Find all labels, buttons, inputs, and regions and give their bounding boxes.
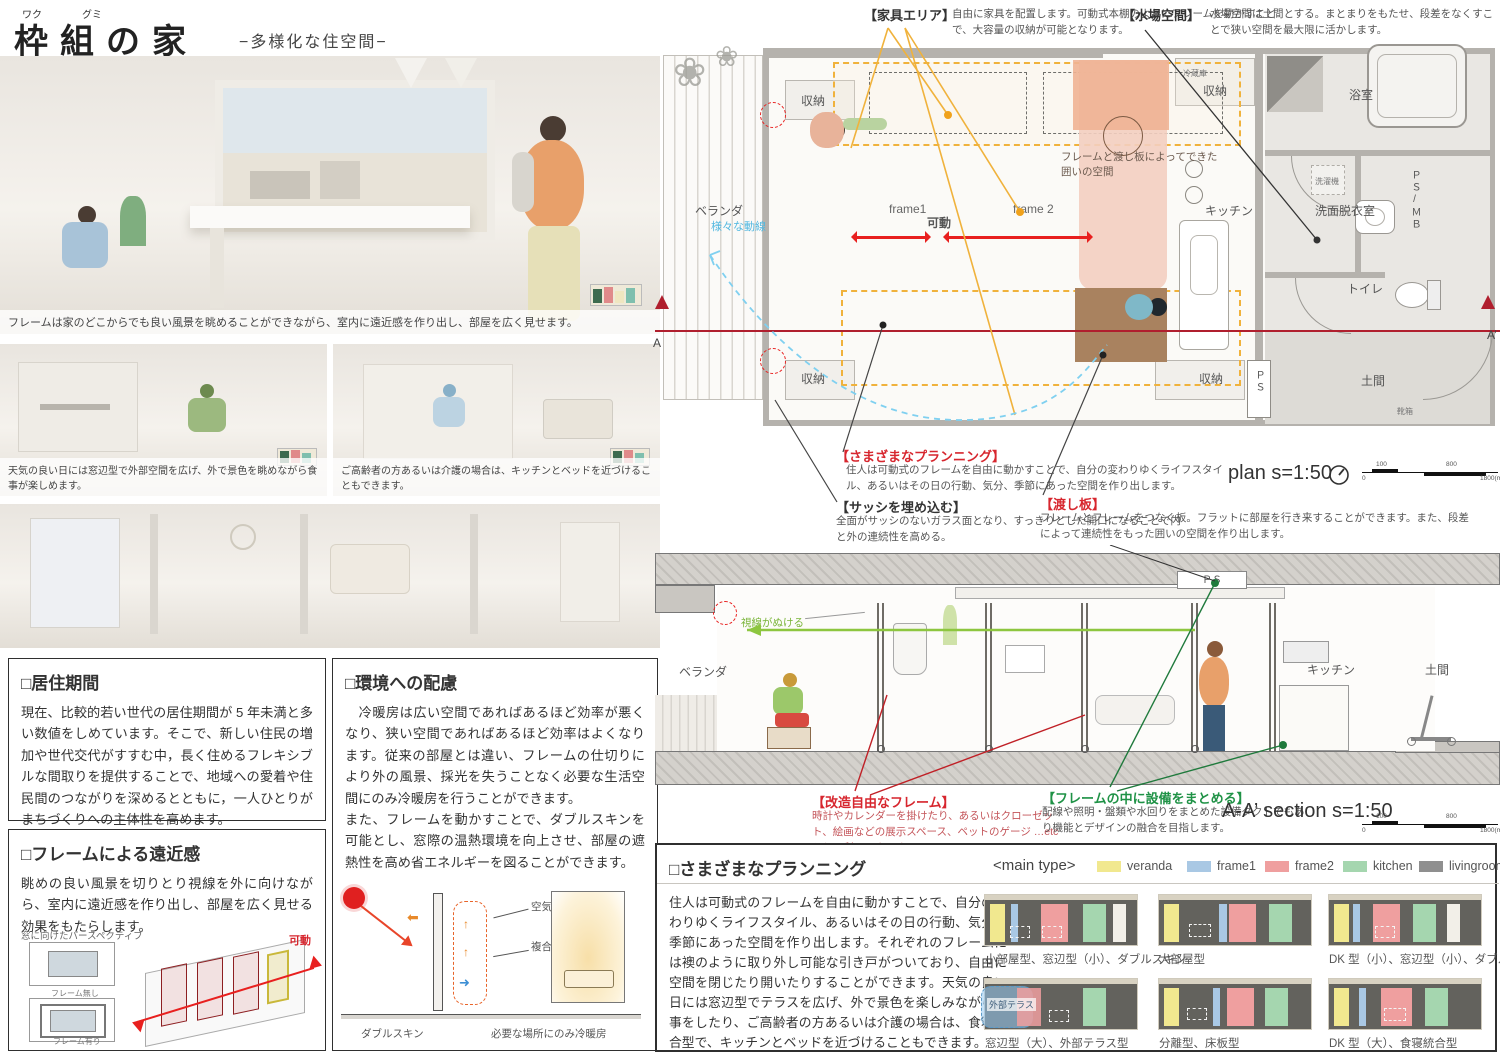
toilet-bowl <box>1395 282 1429 308</box>
window-shape <box>30 518 120 628</box>
storage-br-label: 収納 <box>1199 370 1223 387</box>
airflow-up-arrow: ↑ <box>463 917 469 931</box>
window-picture <box>50 1010 96 1032</box>
legend-label: frame1 <box>1217 859 1256 873</box>
movable-label: 可動 <box>927 214 951 231</box>
frame-wheel <box>1191 745 1199 753</box>
seated-person-body <box>62 222 108 268</box>
section-person-head <box>1207 641 1223 657</box>
person-head <box>443 384 456 397</box>
window-picture <box>48 951 98 977</box>
local-hvac-label: 必要な場所にのみ冷暖房 <box>491 1026 607 1041</box>
person-bag <box>512 152 534 212</box>
section-cut-arrow <box>1481 288 1495 309</box>
section-drawing: ＰＳ ベランダ <box>655 545 1500 800</box>
north-arrow-icon <box>1328 464 1350 486</box>
plant-icon: ❀ <box>673 50 707 96</box>
floor-slab <box>655 751 1500 785</box>
water-note-title: 【水場空間】 <box>1122 5 1200 24</box>
type-label-1: 小部屋型、窓辺型（小）、ダブルスキン <box>985 951 1186 967</box>
tick-0: 0 <box>1362 475 1366 482</box>
section-cut-arrow <box>655 288 669 309</box>
page-subtitle: −多様化な住空間− <box>239 28 388 52</box>
scalebar-segment <box>1372 821 1398 825</box>
kitchen-swatch <box>1343 861 1367 872</box>
arrowhead <box>309 956 330 975</box>
type-label-2: 大部屋型 <box>1159 951 1205 967</box>
person-head <box>200 384 214 398</box>
legend-label: frame2 <box>1295 859 1334 873</box>
enclosure-label: フレームと渡し板によってできた囲いの空間 <box>1061 150 1221 179</box>
furniture-shelf-outline <box>869 72 1027 134</box>
plant-shape <box>120 196 146 246</box>
sofa-shape <box>1095 695 1175 725</box>
render-main-caption: フレームは家のどこからでも良い風景を眺めることができながら、室内に遠近感を作り出… <box>0 310 660 334</box>
washroom-label: 洗面脱衣室 <box>1315 202 1375 219</box>
frame1-swatch <box>1187 861 1211 872</box>
ps-label: ＰＳ <box>1251 370 1266 394</box>
legend-label: veranda <box>1127 859 1172 873</box>
presentation-board: ワク グミ 枠組の家 −多様化な住空間− フレームは家のどこからでも良い風景を眺… <box>0 0 1500 1054</box>
legend-label: livingroom <box>1449 859 1500 873</box>
shoes-label: 靴箱 <box>1397 406 1413 417</box>
type-thumb-1 <box>985 895 1137 945</box>
detail-circle <box>713 601 737 625</box>
shelf-shape <box>560 522 620 622</box>
section-doma-label: 土間 <box>1425 661 1449 678</box>
scalebar-segment <box>1424 824 1486 828</box>
title-block: ワク グミ 枠組の家 −多様化な住空間− <box>14 6 654 54</box>
section-person-legs <box>1203 705 1225 751</box>
frame-post <box>985 603 992 751</box>
wall-art <box>1005 645 1045 673</box>
render-frames <box>0 504 660 648</box>
tick-1800: 1800(mm) <box>1480 475 1500 482</box>
section-veranda-label: ベランダ <box>679 663 727 680</box>
person-head <box>540 116 566 142</box>
colored-bookshelf <box>590 284 642 306</box>
no-frame-diagram <box>29 942 115 986</box>
kitchen-counter <box>1279 685 1349 751</box>
veranda-swatch <box>1097 861 1121 872</box>
person-body <box>188 398 226 432</box>
toilet-label: トイレ <box>1347 280 1383 297</box>
stool-shape <box>767 727 811 749</box>
planning-panel-body: 住人は可動式のフレームを自由に動かすことで、自分の変わりゆくライフスタイル、ある… <box>669 893 1007 1053</box>
city-block-shape <box>250 171 310 199</box>
fridge-label: 冷蔵庫 <box>1183 68 1207 79</box>
frame-post <box>877 603 884 751</box>
legend-item-frame1: frame1 <box>1187 859 1256 873</box>
plan-person-body <box>810 112 844 148</box>
person-legs <box>528 226 580 321</box>
flow-label: 様々な動線 <box>711 218 766 234</box>
residence-body: 現在、比較的若い世代の居住期間が 5 年未満と多い数値をしめています。そこで、新… <box>21 702 313 830</box>
plan-scale-label: plan s=1:50 <box>1228 462 1332 485</box>
double-skin-label: ダブルスキン <box>361 1026 424 1041</box>
heated-room <box>551 891 625 1003</box>
sightline-label: 視線がぬける <box>741 615 804 630</box>
scooter-wheel <box>1407 737 1416 746</box>
bathtub <box>1367 44 1467 128</box>
render-main: フレームは家のどこからでも良い風景を眺めることができながら、室内に遠近感を作り出… <box>0 56 660 334</box>
perspective-title: □フレームによる遠近感 <box>21 840 313 865</box>
type-label-3: DK 型（小）、窓辺型（小）、ダブルスキン <box>1329 951 1500 967</box>
environment-body1: 冷暖房は広い空間であればあるほど効率が悪くなり、狭い空間であればあるほど効率はよ… <box>345 702 645 809</box>
tick-800: 800 <box>1446 461 1457 468</box>
doma-label: 土間 <box>1361 372 1385 389</box>
frame-wheel <box>1081 745 1089 753</box>
movable-frame-shape <box>197 957 223 1021</box>
book-shape <box>604 287 613 303</box>
scalebar-segment <box>1372 469 1398 473</box>
bath-door-shape <box>1267 56 1323 112</box>
section-cut-line <box>655 330 1500 332</box>
wall <box>1415 150 1490 156</box>
detail-circle <box>760 348 786 374</box>
frame-post <box>470 514 478 634</box>
counter-shape <box>190 206 470 228</box>
environment-box: □環境への配慮 冷暖房は広い空間であればあるほど効率が悪くなり、狭い空間であれば… <box>332 658 658 1051</box>
sun-ray-arrow <box>360 905 409 944</box>
bed-shape <box>543 399 613 439</box>
frame-post <box>1081 603 1088 751</box>
floor-plan: ❀ ❀ <box>655 30 1500 440</box>
frame-wheel <box>985 745 993 753</box>
with-frame-label: フレーム有り <box>53 1036 101 1047</box>
livingroom-swatch <box>1419 861 1443 872</box>
planning-note-body: 住人は可動式のフレームを自由に動かすことで、自分の変わりゆくライフスタイル、ある… <box>846 463 1236 495</box>
wheelchair-person <box>433 397 465 427</box>
frame-post <box>1191 603 1198 751</box>
plan-scalebar: 0 100 800 1800(mm) <box>1362 466 1500 480</box>
airflow-out-arrow: ⬅ <box>407 909 419 926</box>
legend-item-livingroom: livingroom <box>1419 859 1500 873</box>
kitchen-label: キッチン <box>1205 202 1253 219</box>
section-person-body <box>1199 657 1229 707</box>
leader-line <box>493 950 529 957</box>
type-label-4: 窓辺型（大）、外部テラス型 <box>985 1035 1129 1051</box>
furniture-note-title: 【家具エリア】 <box>864 5 955 24</box>
scooter-wheel <box>1447 737 1456 746</box>
wall-clock <box>230 524 256 550</box>
frame-post <box>1269 603 1276 751</box>
plant-shape <box>943 605 957 645</box>
environment-diagram: ↑ ↑ ➜ ⬅ 空気層 複合ガラス ダブルスキン 必要な場所にのみ冷暖房 <box>341 887 641 1037</box>
airflow-up-arrow: ↑ <box>463 945 469 959</box>
type-thumb-3 <box>1329 895 1481 945</box>
render-terrace: 天気の良い日には窓辺型で外部空間を広げ、外で景色を眺めながら食事が楽しめます。 <box>0 344 327 496</box>
scalebar-segment <box>1424 472 1486 476</box>
book-shape <box>593 289 602 303</box>
ceiling-slab <box>655 553 1500 585</box>
movable-arrow <box>947 236 1089 239</box>
section-kitchen-label: キッチン <box>1307 661 1355 678</box>
toilet-tank <box>1427 280 1441 310</box>
stove-burner <box>1185 186 1203 204</box>
type-thumb-6 <box>1329 979 1481 1029</box>
residence-box: □居住期間 現在、比較的若い世代の居住期間が 5 年未満と多い数値をしめています… <box>8 658 326 821</box>
render-care-caption: ご高齢者の方あるいは介護の場合は、キッチンとベッドを近づけることもできます。 <box>333 458 660 496</box>
storage-bl-label: 収納 <box>801 370 825 387</box>
tick-800: 800 <box>1446 813 1457 820</box>
legend-item-kitchen: kitchen <box>1343 859 1413 873</box>
frame2-label: frame 2 <box>1013 202 1054 216</box>
wall <box>763 48 1103 58</box>
type-thumb-2 <box>1159 895 1311 945</box>
plan-person-legs <box>843 118 887 130</box>
storage-tr-label: 収納 <box>1203 82 1227 99</box>
book-shape <box>626 288 635 303</box>
airflow-in-arrow: ➜ <box>459 975 470 991</box>
environment-title: □環境への配慮 <box>345 669 645 694</box>
legend-item-frame2: frame2 <box>1265 859 1334 873</box>
bed-shape <box>564 970 614 988</box>
ps-box: ＰＳ <box>1177 571 1247 589</box>
hanging-shirt <box>893 623 927 675</box>
movable-frame-shape <box>233 951 259 1015</box>
tick-100: 100 <box>1376 813 1387 820</box>
scooter-deck <box>1411 737 1451 741</box>
type-label-5: 分離型、床板型 <box>1159 1035 1240 1051</box>
frame-wheel <box>877 745 885 753</box>
frame1-label: frame1 <box>889 202 926 216</box>
veranda-label: ベランダ <box>695 202 743 219</box>
washer-label: 洗濯機 <box>1315 176 1339 187</box>
balcony-rail <box>655 695 717 751</box>
counter-leg <box>210 228 224 308</box>
section-mark-a: A <box>653 336 661 350</box>
slab-step <box>655 585 715 613</box>
type-label-6: DK 型（大）、食寝統合型 <box>1329 1035 1457 1051</box>
detail-circle <box>760 102 786 128</box>
perspective-diagram-caption: 窓に向けたパースペクティブ <box>21 928 143 942</box>
frame-isometric-sketch: 可動 <box>139 930 319 1045</box>
sink-basin <box>1190 235 1218 295</box>
bath-label: 浴室 <box>1349 86 1373 103</box>
legend-label: kitchen <box>1373 859 1413 873</box>
type-thumb-4: 外部テラス <box>985 979 1137 1029</box>
book-shape <box>615 291 624 303</box>
perspective-box: □フレームによる遠近感 眺めの良い風景を切りとり視線を外に向けながら、室内に遠近… <box>8 829 326 1051</box>
bathtub-inner <box>1377 54 1457 118</box>
tick-100: 100 <box>1376 461 1387 468</box>
terrace-label: 外部テラス <box>987 998 1036 1011</box>
planning-panel: □さまざまなプランニング 住人は可動式のフレームを自由に動かすことで、自分の変わ… <box>655 843 1497 1052</box>
frame2-swatch <box>1265 861 1289 872</box>
tick-0: 0 <box>1362 827 1366 834</box>
section-mark-a-prime: A’ <box>1487 328 1497 342</box>
plant-icon: ❀ <box>715 40 738 73</box>
storage-tl-label: 収納 <box>801 92 825 109</box>
board-note-body: フレームとフレームをつなぐ板。フラットに部屋を行き来することができます。また、段… <box>1040 511 1470 543</box>
plan-person2-body <box>1125 294 1153 320</box>
section-person2-legs <box>775 713 809 727</box>
arrowhead <box>123 1014 144 1033</box>
type-thumb-5 <box>1159 979 1311 1029</box>
divider <box>657 883 1499 884</box>
section-scalebar: 0 100 800 1800(mm) <box>1362 818 1500 832</box>
legend-title: <main type> <box>993 857 1076 874</box>
frame-post <box>300 514 308 634</box>
range-hood <box>1283 641 1329 663</box>
movable-label: 可動 <box>289 932 311 948</box>
section-person2-body <box>773 687 803 715</box>
movable-frame-shape <box>161 963 187 1027</box>
legend-item-veranda: veranda <box>1097 859 1172 873</box>
tick-1800: 1800(mm) <box>1480 827 1500 834</box>
pendant-lamp <box>445 58 477 104</box>
sofa-shape <box>330 544 410 594</box>
floor-slab <box>341 1014 641 1019</box>
frame-post <box>150 514 158 634</box>
section-person2-head <box>783 673 797 687</box>
leader-line <box>493 909 528 919</box>
render-terrace-caption: 天気の良い日には窓辺型で外部空間を広げ、外で景色を眺めながら食事が楽しめます。 <box>0 458 327 496</box>
environment-body2: また、フレームを動かすことで、ダブルスキンを可能とし、窓際の温熱環境を向上させ、… <box>345 809 645 873</box>
residence-title: □居住期間 <box>21 669 313 694</box>
railing-shape <box>40 404 110 410</box>
wall-section <box>433 893 443 1011</box>
render-care: ご高齢者の方あるいは介護の場合は、キッチンとベッドを近づけることもできます。 <box>333 344 660 496</box>
pendant-lamp <box>395 58 427 104</box>
city-block-shape <box>320 161 360 199</box>
planning-panel-title: □さまざまなプランニング <box>669 855 866 880</box>
psmb-label: ＰＳ/ＭＢ <box>1407 170 1422 231</box>
movable-arrow <box>855 236 927 239</box>
